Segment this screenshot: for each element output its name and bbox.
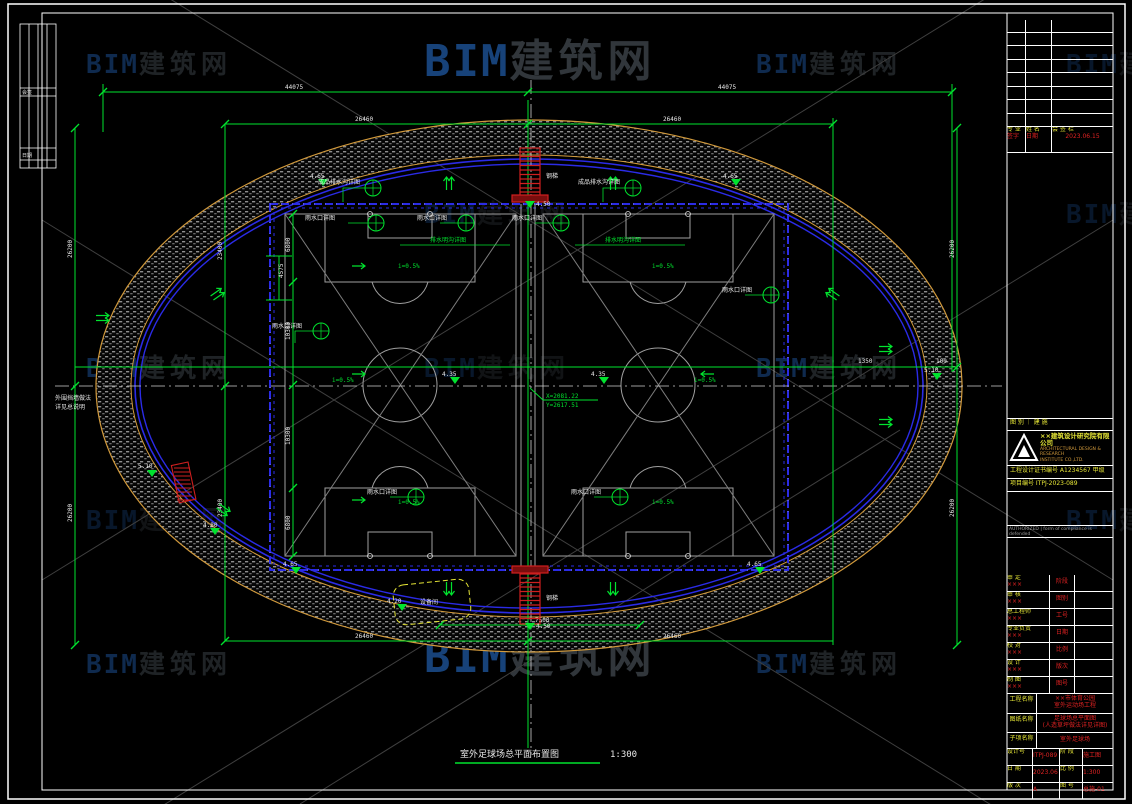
- svg-text:雨水口详图: 雨水口详图: [367, 488, 397, 496]
- svg-text:室外足球场总平面布置图: 室外足球场总平面布置图: [460, 748, 559, 760]
- svg-text:成品排水沟详图: 成品排水沟详图: [578, 178, 620, 186]
- svg-text:排水明沟详图: 排水明沟详图: [430, 236, 466, 244]
- svg-text:雨水口详图: 雨水口详图: [571, 488, 601, 496]
- centerlines: [55, 80, 1002, 755]
- svg-text:26460: 26460: [355, 116, 373, 123]
- svg-text:26200: 26200: [949, 240, 956, 258]
- coordinate-callout: X=2081.22 Y=2617.51: [530, 388, 598, 409]
- svg-text:Y=2617.51: Y=2617.51: [546, 402, 579, 409]
- corner-strip-label: 会签: [22, 89, 32, 96]
- svg-text:外围挡墙做法: 外围挡墙做法: [55, 394, 91, 402]
- svg-text:i=0.5%: i=0.5%: [652, 499, 674, 506]
- svg-text:26460: 26460: [355, 633, 373, 640]
- svg-text:23400: 23400: [217, 242, 224, 260]
- svg-text:10300: 10300: [285, 427, 292, 445]
- stair-bottom: [512, 566, 548, 624]
- svg-text:4.20: 4.20: [387, 598, 402, 605]
- svg-text:雨水口详图: 雨水口详图: [272, 322, 302, 330]
- svg-text:4.50: 4.50: [536, 201, 551, 208]
- svg-text:4575: 4575: [278, 263, 285, 278]
- svg-text:雨水口详图: 雨水口详图: [512, 214, 542, 222]
- compliance-note: AUTHORIZED | form of compliance is defen…: [1009, 527, 1113, 537]
- company-block: ××建筑设计研究院有限公司 ARCHITECTURAL DESIGN & RES…: [1007, 431, 1113, 466]
- cert-row: 工程设计证书编号 A1234567 甲级: [1007, 466, 1113, 479]
- corner-signature-strip: [20, 24, 56, 168]
- svg-text:44075: 44075: [718, 84, 736, 91]
- svg-text:i=0.5%: i=0.5%: [694, 377, 716, 384]
- field-enclosure: [270, 204, 788, 570]
- svg-text:雨水口详图: 雨水口详图: [417, 214, 447, 222]
- svg-text:雨水口详图: 雨水口详图: [722, 286, 752, 294]
- project-no-row: 项目编号 ITPJ-2023-089: [1007, 479, 1113, 492]
- svg-text:44075: 44075: [285, 84, 303, 91]
- drawing-title: 室外足球场总平面布置图 1:300: [455, 748, 637, 763]
- svg-text:X=2081.22: X=2081.22: [546, 393, 579, 400]
- svg-text:详见总说明: 详见总说明: [55, 403, 85, 411]
- wall-note: 外围挡墙做法 详见总说明: [55, 394, 91, 411]
- svg-text:26200: 26200: [67, 504, 74, 522]
- svg-text:钢梯: 钢梯: [546, 172, 558, 180]
- site-plan-drawing: 会签 日期: [0, 0, 1132, 804]
- svg-text:26200: 26200: [67, 240, 74, 258]
- svg-text:23400: 23400: [217, 499, 224, 517]
- svg-text:5.10: 5.10: [138, 463, 153, 470]
- svg-text:排水明沟详图: 排水明沟详图: [605, 236, 641, 244]
- stage-row: 图 别 ｜ 建 施: [1007, 418, 1113, 431]
- corner-strip-label: 日期: [22, 153, 32, 159]
- svg-text:26460: 26460: [663, 116, 681, 123]
- svg-text:4.50: 4.50: [536, 623, 551, 630]
- svg-text:4.80: 4.80: [203, 522, 218, 529]
- svg-text:雨水口详图: 雨水口详图: [305, 214, 335, 222]
- svg-text:4.35: 4.35: [442, 371, 457, 378]
- svg-text:i=0.5%: i=0.5%: [398, 499, 420, 506]
- company-logo: [1009, 433, 1039, 463]
- stair-top: [512, 148, 548, 202]
- title-block: 专 业签字 姓 名日期 会 签 栏2023.06.15 图 别 ｜ 建 施 ××…: [1007, 13, 1113, 799]
- svg-text:1350: 1350: [858, 358, 873, 365]
- equipment-pad-label: 设备间: [420, 598, 438, 606]
- svg-text:i=0.5%: i=0.5%: [652, 263, 674, 270]
- sign-row: 专 业签字 姓 名日期 会 签 栏2023.06.15: [1007, 127, 1113, 153]
- svg-text:6800: 6800: [285, 515, 292, 530]
- svg-text:i=0.5%: i=0.5%: [332, 377, 354, 384]
- svg-text:4.65: 4.65: [747, 561, 762, 568]
- callout-labels: 成品排水沟详图 成品排水沟详图 雨水口详图 雨水口详图 雨水口详图 雨水口详图 …: [272, 172, 752, 602]
- svg-text:成品排水沟详图: 成品排水沟详图: [318, 178, 360, 186]
- svg-text:i=0.5%: i=0.5%: [398, 263, 420, 270]
- svg-text:钢梯: 钢梯: [546, 594, 558, 602]
- svg-text:1:300: 1:300: [610, 750, 637, 760]
- svg-text:5.10: 5.10: [924, 367, 939, 374]
- svg-text:4.65: 4.65: [283, 561, 298, 568]
- svg-text:6800: 6800: [285, 237, 292, 252]
- cad-sheet: BIM建筑网 BIM建筑网 BIM建筑网 BIM建筑网 BIM建筑网 BIM建筑…: [0, 0, 1132, 804]
- svg-text:100: 100: [936, 358, 947, 365]
- svg-text:26200: 26200: [949, 499, 956, 517]
- svg-text:4.35: 4.35: [591, 371, 606, 378]
- svg-text:26460: 26460: [663, 633, 681, 640]
- svg-text:4.65: 4.65: [723, 173, 738, 180]
